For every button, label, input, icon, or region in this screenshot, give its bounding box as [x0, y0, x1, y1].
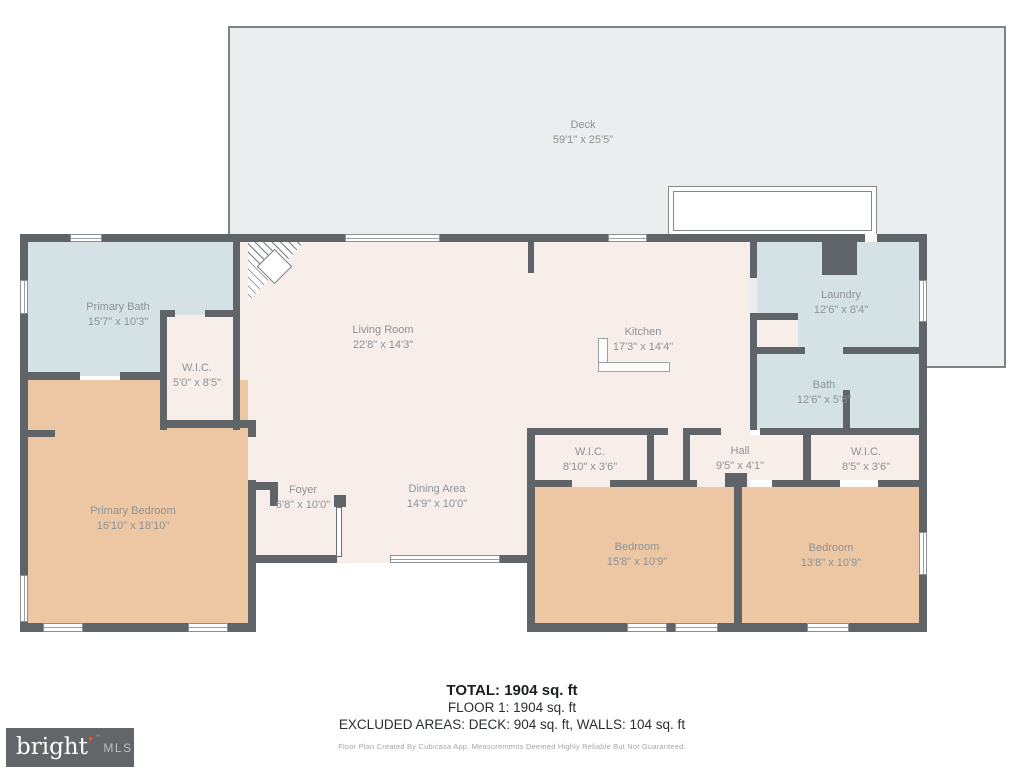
front-door-opening	[337, 555, 390, 563]
wall	[160, 310, 167, 430]
wall	[527, 623, 927, 632]
room-name: Primary Bath	[86, 300, 150, 315]
room-name: Dining Area	[409, 482, 466, 497]
wall	[160, 420, 255, 428]
label-bath: Bath 12'6" x 5'8"	[797, 378, 851, 407]
label-bedroom-right: Bedroom 13'8" x 10'9"	[801, 541, 861, 570]
closet-notch	[757, 318, 798, 347]
logo-mls-text: MLS	[103, 741, 132, 755]
label-primary-bedroom: Primary Bedroom 16'10" x 18'10"	[90, 504, 176, 533]
wall	[233, 242, 240, 430]
room-dims: 17'3" x 14'4"	[613, 340, 673, 355]
label-hall: Hall 9'5" x 4'1"	[716, 444, 764, 473]
chimney-block	[822, 242, 857, 275]
wall	[527, 480, 572, 487]
window	[608, 234, 647, 242]
room-mini-closet	[654, 435, 683, 480]
room-name: Foyer	[289, 483, 317, 498]
floor-area-text: FLOOR 1: 1904 sq. ft	[0, 699, 1024, 716]
door-leaf	[336, 507, 342, 557]
room-dims: 14'9" x 10'0"	[407, 497, 467, 512]
label-dining-area: Dining Area 14'9" x 10'0"	[407, 482, 467, 511]
window	[919, 532, 927, 575]
wall	[750, 242, 757, 278]
window	[807, 623, 849, 632]
room-dims: 12'6" x 8'4"	[814, 303, 868, 318]
window	[20, 280, 28, 314]
room-name: Primary Bedroom	[90, 504, 176, 519]
sliding-door	[345, 234, 440, 242]
wall	[248, 480, 256, 632]
wall	[803, 428, 811, 487]
floor-plan-canvas: Deck 59'1" x 25'5" Primary Bath 15'7" x …	[0, 0, 1024, 768]
room-dims: 6'8" x 10'0"	[276, 498, 330, 513]
wall	[528, 242, 534, 273]
wall	[843, 347, 919, 354]
window	[188, 623, 228, 632]
room-dims: 13'8" x 10'9"	[801, 556, 861, 571]
label-bedroom-left: Bedroom 15'8" x 10'9"	[607, 540, 667, 569]
wall	[760, 428, 919, 435]
label-wic-right: W.I.C. 8'5" x 3'6"	[842, 445, 890, 474]
label-laundry: Laundry 12'6" x 8'4"	[814, 288, 868, 317]
window	[919, 280, 927, 322]
door-opening	[865, 234, 877, 242]
label-primary-bath: Primary Bath 15'7" x 10'3"	[86, 300, 150, 329]
label-wic-left: W.I.C. 8'10" x 3'6"	[563, 445, 617, 474]
room-dims: 16'10" x 18'10"	[97, 519, 170, 534]
wall	[725, 480, 747, 487]
wall	[20, 234, 927, 242]
room-name: Living Room	[352, 323, 413, 338]
window	[43, 623, 83, 632]
window	[390, 555, 500, 563]
logo-brand-text: bright	[16, 736, 88, 759]
wall	[772, 480, 840, 487]
window	[675, 623, 718, 632]
label-foyer: Foyer 6'8" x 10'0"	[276, 483, 330, 512]
room-dims: 22'8" x 14'3"	[353, 338, 413, 353]
room-dims: 12'6" x 5'8"	[797, 393, 851, 408]
wall	[750, 313, 757, 430]
logo-trademark: ™	[95, 734, 100, 740]
disclaimer-text: Floor Plan Created By Cubicasa App. Meas…	[0, 742, 1024, 751]
wall	[878, 480, 919, 487]
room-name: Hall	[731, 444, 750, 459]
room-dims: 9'5" x 4'1"	[716, 459, 764, 474]
wall	[725, 473, 747, 480]
label-wic-primary: W.I.C. 5'0" x 8'5"	[173, 361, 221, 390]
room-name: Kitchen	[625, 325, 662, 340]
room-name: Deck	[570, 118, 595, 133]
room-dims: 15'7" x 10'3"	[88, 315, 148, 330]
window	[70, 234, 102, 242]
wall	[167, 310, 175, 317]
wall	[527, 428, 535, 632]
label-kitchen: Kitchen 17'3" x 14'4"	[613, 325, 673, 354]
kitchen-counter	[598, 362, 670, 372]
window	[20, 575, 28, 622]
room-dims: 15'8" x 10'9"	[607, 555, 667, 570]
wall	[683, 428, 690, 487]
wall	[734, 487, 742, 623]
room-name: Bedroom	[809, 541, 854, 556]
area-summary: TOTAL: 1904 sq. ft FLOOR 1: 1904 sq. ft …	[0, 682, 1024, 751]
room-dims: 59'1" x 25'5"	[553, 133, 613, 148]
wall	[20, 430, 55, 437]
room-dims: 5'0" x 8'5"	[173, 376, 221, 391]
room-dims: 8'5" x 3'6"	[842, 460, 890, 475]
room-name: W.I.C.	[575, 445, 605, 460]
room-dims: 8'10" x 3'6"	[563, 460, 617, 475]
room-name: Bedroom	[615, 540, 660, 555]
label-deck: Deck 59'1" x 25'5"	[553, 118, 613, 147]
wall	[750, 313, 798, 320]
wall	[248, 482, 278, 490]
deck-opening	[668, 186, 877, 236]
bright-mls-logo: bright ✦ ™ MLS	[6, 728, 134, 767]
room-name: Laundry	[821, 288, 861, 303]
wall	[647, 428, 654, 480]
logo-star-icon: ✦	[87, 734, 95, 745]
wall	[27, 372, 80, 380]
wall	[750, 347, 805, 354]
label-living-room: Living Room 22'8" x 14'3"	[352, 323, 413, 352]
wall	[610, 480, 697, 487]
room-name: W.I.C.	[851, 445, 881, 460]
room-name: Bath	[813, 378, 836, 393]
total-area-text: TOTAL: 1904 sq. ft	[0, 682, 1024, 699]
excluded-area-text: EXCLUDED AREAS: DECK: 904 sq. ft, WALLS:…	[0, 716, 1024, 733]
room-name: W.I.C.	[182, 361, 212, 376]
door-hinge-post	[334, 495, 346, 507]
window	[627, 623, 667, 632]
